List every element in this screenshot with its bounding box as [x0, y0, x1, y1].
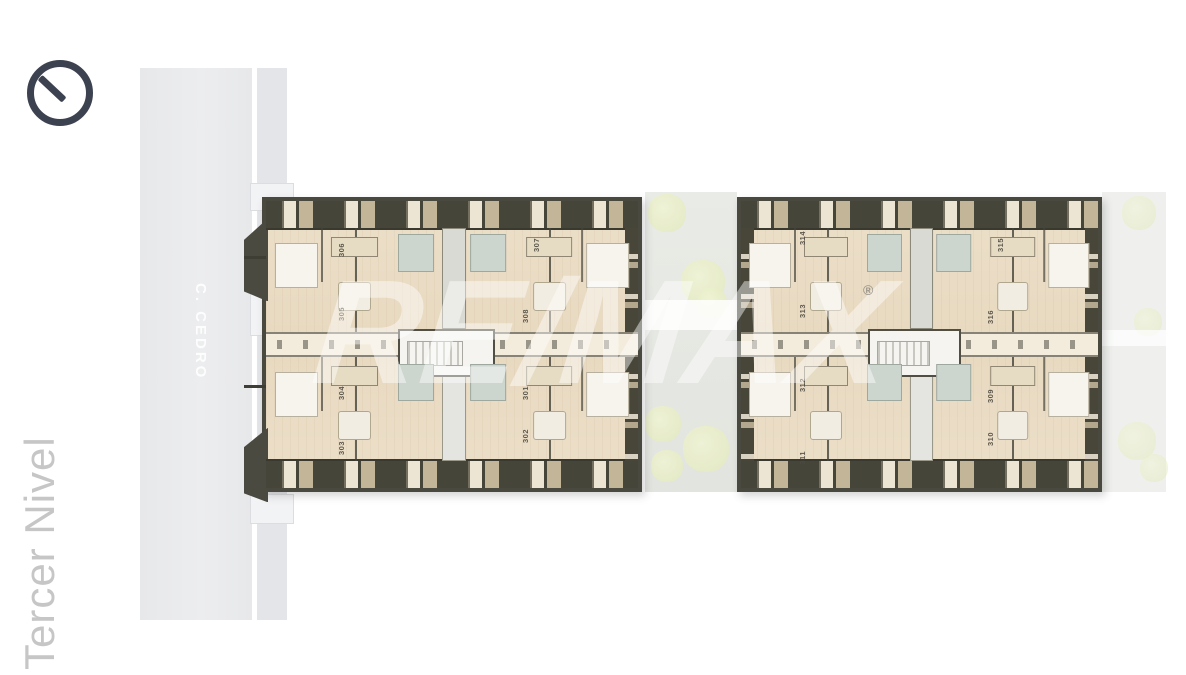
bathroom: [470, 234, 506, 271]
apartment-quadrant: [463, 357, 634, 460]
courtyard-between-blocks: [645, 192, 737, 492]
bed: [275, 372, 318, 417]
bed: [275, 243, 318, 288]
bed: [1048, 243, 1089, 288]
balcony-strip-bottom: [741, 459, 1098, 488]
bathroom: [398, 234, 434, 271]
tree: [648, 194, 686, 232]
interior-wall: [581, 228, 583, 282]
apartment-quadrant: [463, 228, 634, 331]
unit-label: 313: [798, 304, 807, 318]
unit-label: 309: [986, 389, 995, 403]
interior-wall: [581, 357, 583, 411]
unit-label: 314: [798, 231, 807, 245]
tree: [1140, 454, 1168, 482]
bed: [586, 243, 629, 288]
tree: [683, 426, 729, 472]
unit-label: 305: [337, 307, 346, 321]
bed: [749, 243, 790, 288]
bed: [749, 372, 790, 417]
apartment-quadrant: [270, 228, 441, 331]
street-name-label: C. CEDRO: [192, 283, 209, 380]
level-title: Tercer Nivel: [16, 385, 64, 670]
street-band: C. CEDRO: [140, 68, 252, 620]
interior-wall: [794, 357, 796, 411]
interior-wall: [1043, 357, 1045, 411]
wall-stub: [244, 385, 266, 388]
interior-wall: [321, 357, 323, 411]
building-block-left: 306 305 307 308 304 303 301 302: [262, 197, 642, 492]
unit-label: 316: [986, 310, 995, 324]
tree: [651, 450, 683, 482]
apartment-quadrant: [745, 228, 909, 331]
unit-label: 308: [521, 309, 530, 323]
unit-label: 315: [996, 238, 1005, 252]
walkway-band: [1102, 330, 1166, 346]
unit-label: 310: [986, 432, 995, 446]
unit-label: 307: [532, 238, 541, 252]
unit-label: 306: [337, 243, 346, 257]
table: [338, 411, 371, 440]
tree: [1122, 196, 1156, 230]
bathroom: [937, 364, 972, 401]
table: [997, 411, 1029, 440]
bed: [586, 372, 629, 417]
interior-wall: [321, 228, 323, 282]
interior-wall: [794, 228, 796, 282]
wall-stub: [244, 256, 266, 259]
walkway-band: [645, 300, 737, 330]
table: [533, 282, 566, 311]
kitchen: [331, 366, 377, 387]
compass-needle-icon: [38, 75, 67, 103]
compass-icon: [27, 60, 93, 126]
table: [533, 411, 566, 440]
kitchen: [804, 237, 849, 258]
tree: [645, 406, 681, 442]
table: [810, 282, 842, 311]
bathroom: [937, 234, 972, 271]
unit-label: 311: [798, 451, 807, 465]
interior-wall: [1043, 228, 1045, 282]
bathroom: [470, 364, 506, 401]
kitchen: [526, 366, 572, 387]
unit-label: 301: [521, 386, 530, 400]
balcony-strip-top: [266, 201, 638, 230]
apartment-quadrant: [270, 357, 441, 460]
apartment-quadrant: [745, 357, 909, 460]
unit-label: 304: [337, 386, 346, 400]
table: [810, 411, 842, 440]
unit-label: 312: [798, 378, 807, 392]
bed: [1048, 372, 1089, 417]
bathroom: [867, 234, 902, 271]
unit-label: 303: [337, 441, 346, 455]
balcony-strip-bottom: [266, 459, 638, 488]
unit-label: 302: [521, 429, 530, 443]
table: [997, 282, 1029, 311]
bathroom: [867, 364, 902, 401]
apartment-quadrant: [930, 357, 1094, 460]
kitchen: [991, 366, 1036, 387]
bathroom: [398, 364, 434, 401]
driveway-stub: [250, 494, 294, 524]
balcony-strip-top: [741, 201, 1098, 230]
building-block-right: 314 313 315 316 312 311 309 310: [737, 197, 1102, 492]
apartment-quadrant: [930, 228, 1094, 331]
courtyard-right: [1102, 192, 1166, 492]
floorplan-canvas: Tercer Nivel C. CEDRO: [0, 0, 1186, 675]
kitchen: [804, 366, 849, 387]
